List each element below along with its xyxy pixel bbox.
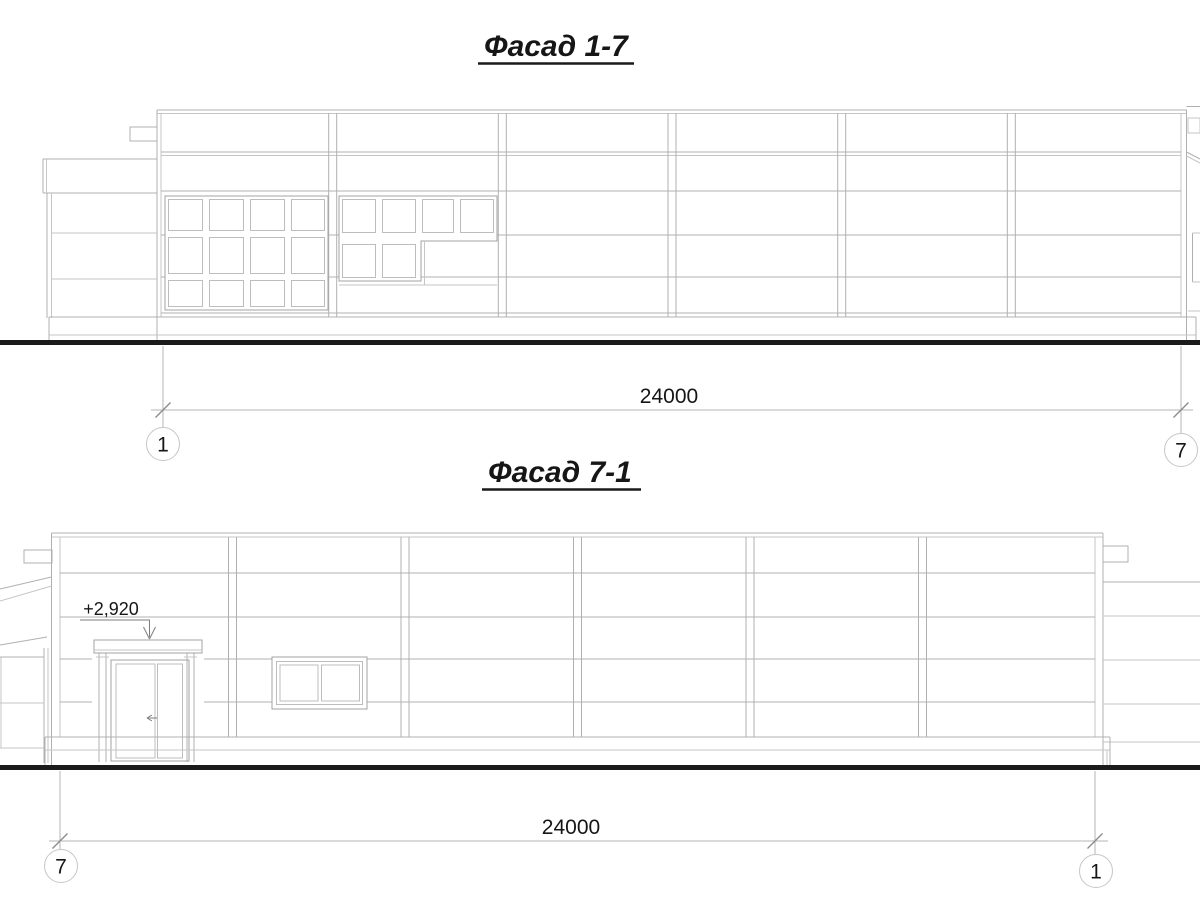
entrance-canopy [94, 640, 202, 653]
facade-1-7-building [43, 107, 1200, 341]
axis-marker-bottom-left: 7 [45, 850, 78, 883]
facade-1-7: Фасад 1-7 [0, 30, 1200, 467]
roof-vent-box [130, 127, 157, 141]
svg-text:1: 1 [157, 434, 169, 457]
elevation-mark-value: +2,920 [83, 599, 139, 619]
facade-7-1: Фасад 7-1 [0, 456, 1200, 888]
axis-marker-bottom-right: 1 [1080, 855, 1113, 888]
roof-vent-box [24, 550, 52, 563]
dimension-bottom: 24000 7 1 [45, 771, 1113, 888]
plinth-bottom [45, 737, 1110, 765]
vent-box [1103, 546, 1128, 562]
ground-line-top [0, 340, 1200, 345]
facade-1-7-title: Фасад 1-7 [484, 30, 629, 63]
facade-7-1-title: Фасад 7-1 [488, 456, 632, 489]
facade-7-1-building: +2,920 [0, 533, 1200, 770]
axis-marker-top-right: 7 [1165, 434, 1198, 467]
ground-line-bottom [0, 765, 1200, 770]
window-grid-b [339, 196, 497, 285]
svg-text:1: 1 [1090, 861, 1102, 884]
left-side-structure [0, 550, 52, 763]
svg-text:7: 7 [55, 856, 67, 879]
left-annex [43, 127, 157, 318]
small-window [272, 657, 367, 709]
window-grid-a [165, 196, 328, 310]
right-annex [1103, 546, 1200, 770]
elevation-mark: +2,920 [80, 599, 156, 639]
axis-marker-top-left: 1 [147, 428, 180, 461]
dimension-top-value: 24000 [640, 385, 698, 408]
entrance [92, 638, 204, 764]
drawing-sheet: Фасад 1-7 [0, 0, 1200, 900]
right-edge-details [1187, 107, 1200, 312]
svg-text:7: 7 [1175, 440, 1187, 463]
plinth-top [49, 317, 1196, 340]
drawing-canvas: Фасад 1-7 [0, 0, 1200, 900]
dimension-bottom-value: 24000 [542, 816, 600, 839]
dimension-top: 24000 1 7 [147, 346, 1198, 467]
scan-noise [344, 8, 1192, 11]
